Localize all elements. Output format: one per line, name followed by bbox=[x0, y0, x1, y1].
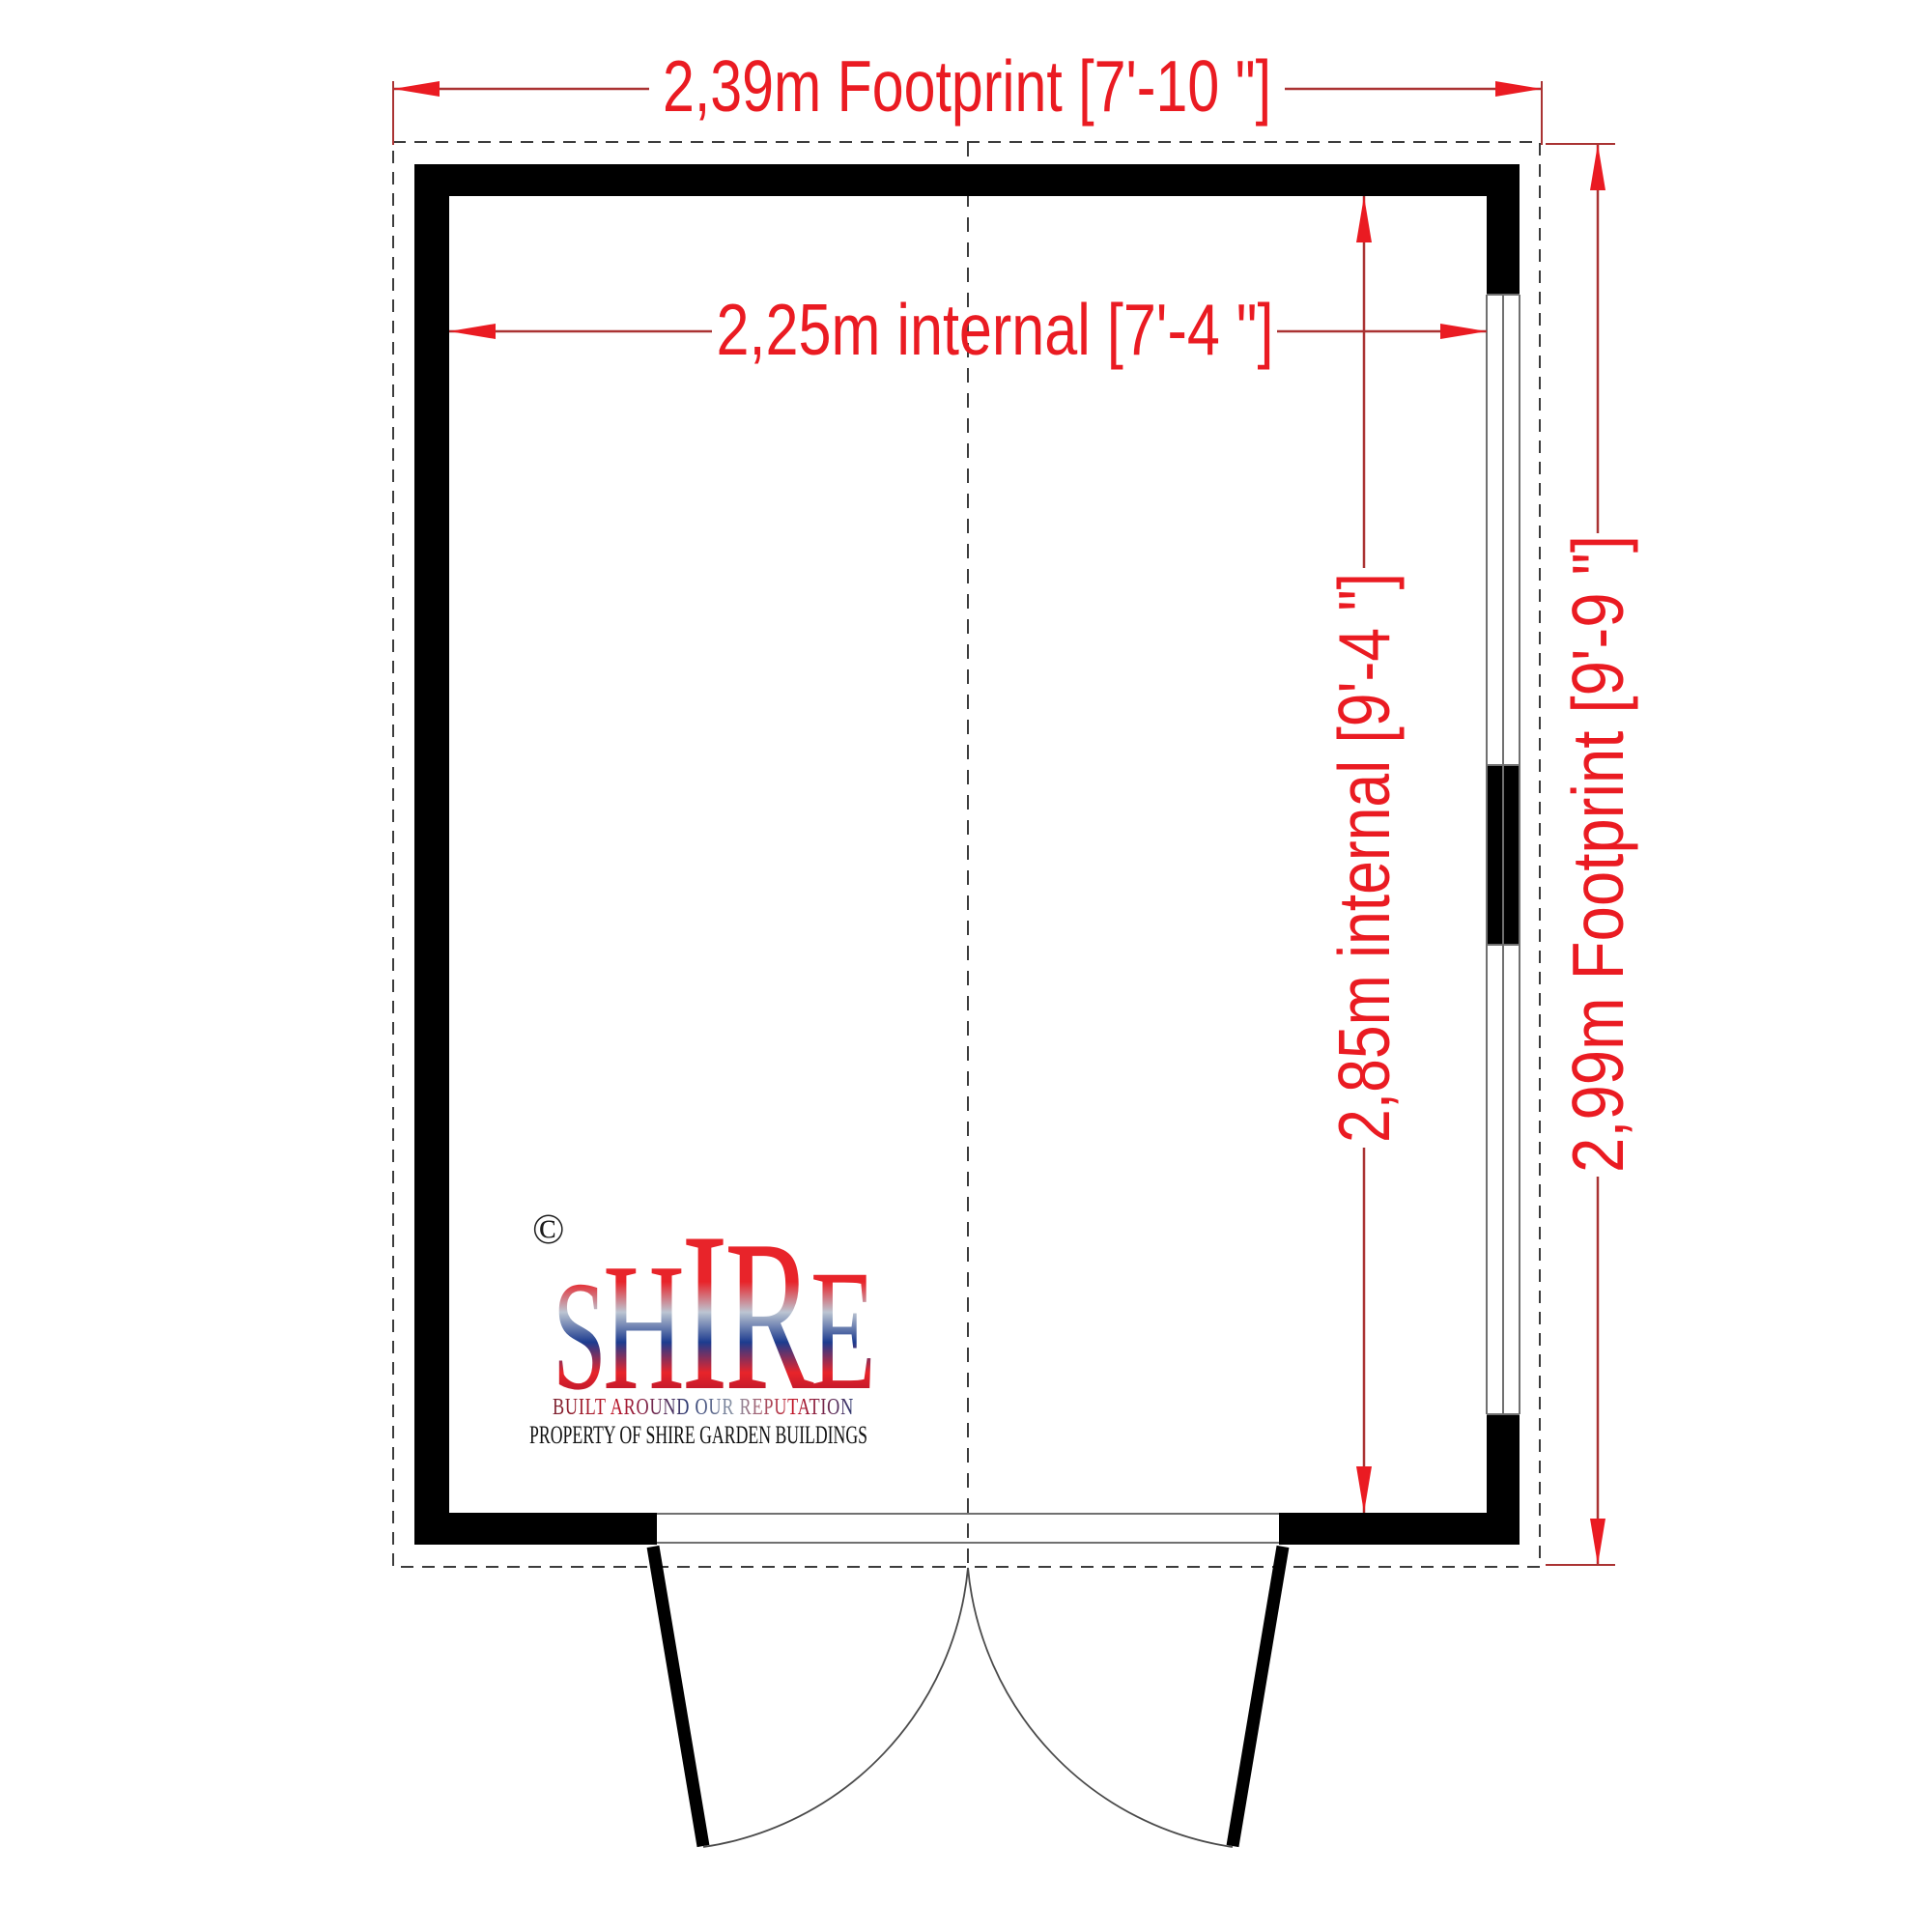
arrow-right-icon bbox=[1440, 324, 1487, 339]
dimension-internal-width: 2,25m internal [7'-4 "] bbox=[449, 289, 1487, 370]
door-swing-arc-right bbox=[968, 1568, 1233, 1847]
logo-tagline: BUILT AROUND OUR REPUTATION bbox=[553, 1395, 854, 1420]
copyright-symbol: © bbox=[532, 1206, 564, 1253]
footprint-height-label: 2,99m Footprint [9'-9 "] bbox=[1557, 535, 1638, 1173]
internal-height-label: 2,85m internal [9'-4 "] bbox=[1323, 573, 1405, 1143]
arrow-left-icon bbox=[449, 324, 496, 339]
arrow-up-icon bbox=[1590, 144, 1605, 190]
door-leaf-left bbox=[653, 1547, 703, 1846]
dimension-footprint-height: 2,99m Footprint [9'-9 "] bbox=[1546, 144, 1638, 1565]
arrow-up-icon bbox=[1356, 196, 1372, 242]
wall-right-top-stub bbox=[1487, 196, 1520, 295]
arrow-right-icon bbox=[1495, 81, 1542, 97]
door-leaf-right bbox=[1233, 1547, 1283, 1846]
wall-top bbox=[414, 164, 1520, 196]
floor-plan-page: 2,39m Footprint [7'-10 "] 2,25m internal… bbox=[0, 0, 1932, 1932]
footprint-width-label: 2,39m Footprint [7'-10 "] bbox=[663, 45, 1271, 127]
wall-left bbox=[414, 164, 449, 1545]
internal-width-label: 2,25m internal [7'-4 "] bbox=[717, 289, 1274, 370]
wall-bottom-right-segment bbox=[1279, 1513, 1520, 1545]
arrow-left-icon bbox=[393, 81, 440, 97]
arrow-down-icon bbox=[1590, 1519, 1605, 1565]
floor-plan-drawing: 2,39m Footprint [7'-10 "] 2,25m internal… bbox=[0, 0, 1932, 1932]
dimension-internal-height: 2,85m internal [9'-4 "] bbox=[1323, 196, 1405, 1513]
wall-right-bottom-stub bbox=[1487, 1414, 1520, 1545]
double-door bbox=[653, 1514, 1283, 1847]
door-swing-arc-left bbox=[703, 1568, 968, 1847]
wall-bottom-left-segment bbox=[414, 1513, 657, 1545]
shire-logo: © SHIRE BUILT AROUND OUR REPUTATION PROP… bbox=[529, 1186, 872, 1449]
arrow-down-icon bbox=[1356, 1466, 1372, 1513]
dimension-footprint-width: 2,39m Footprint [7'-10 "] bbox=[393, 45, 1542, 145]
logo-property-line: PROPERTY OF SHIRE GARDEN BUILDINGS bbox=[529, 1421, 867, 1449]
